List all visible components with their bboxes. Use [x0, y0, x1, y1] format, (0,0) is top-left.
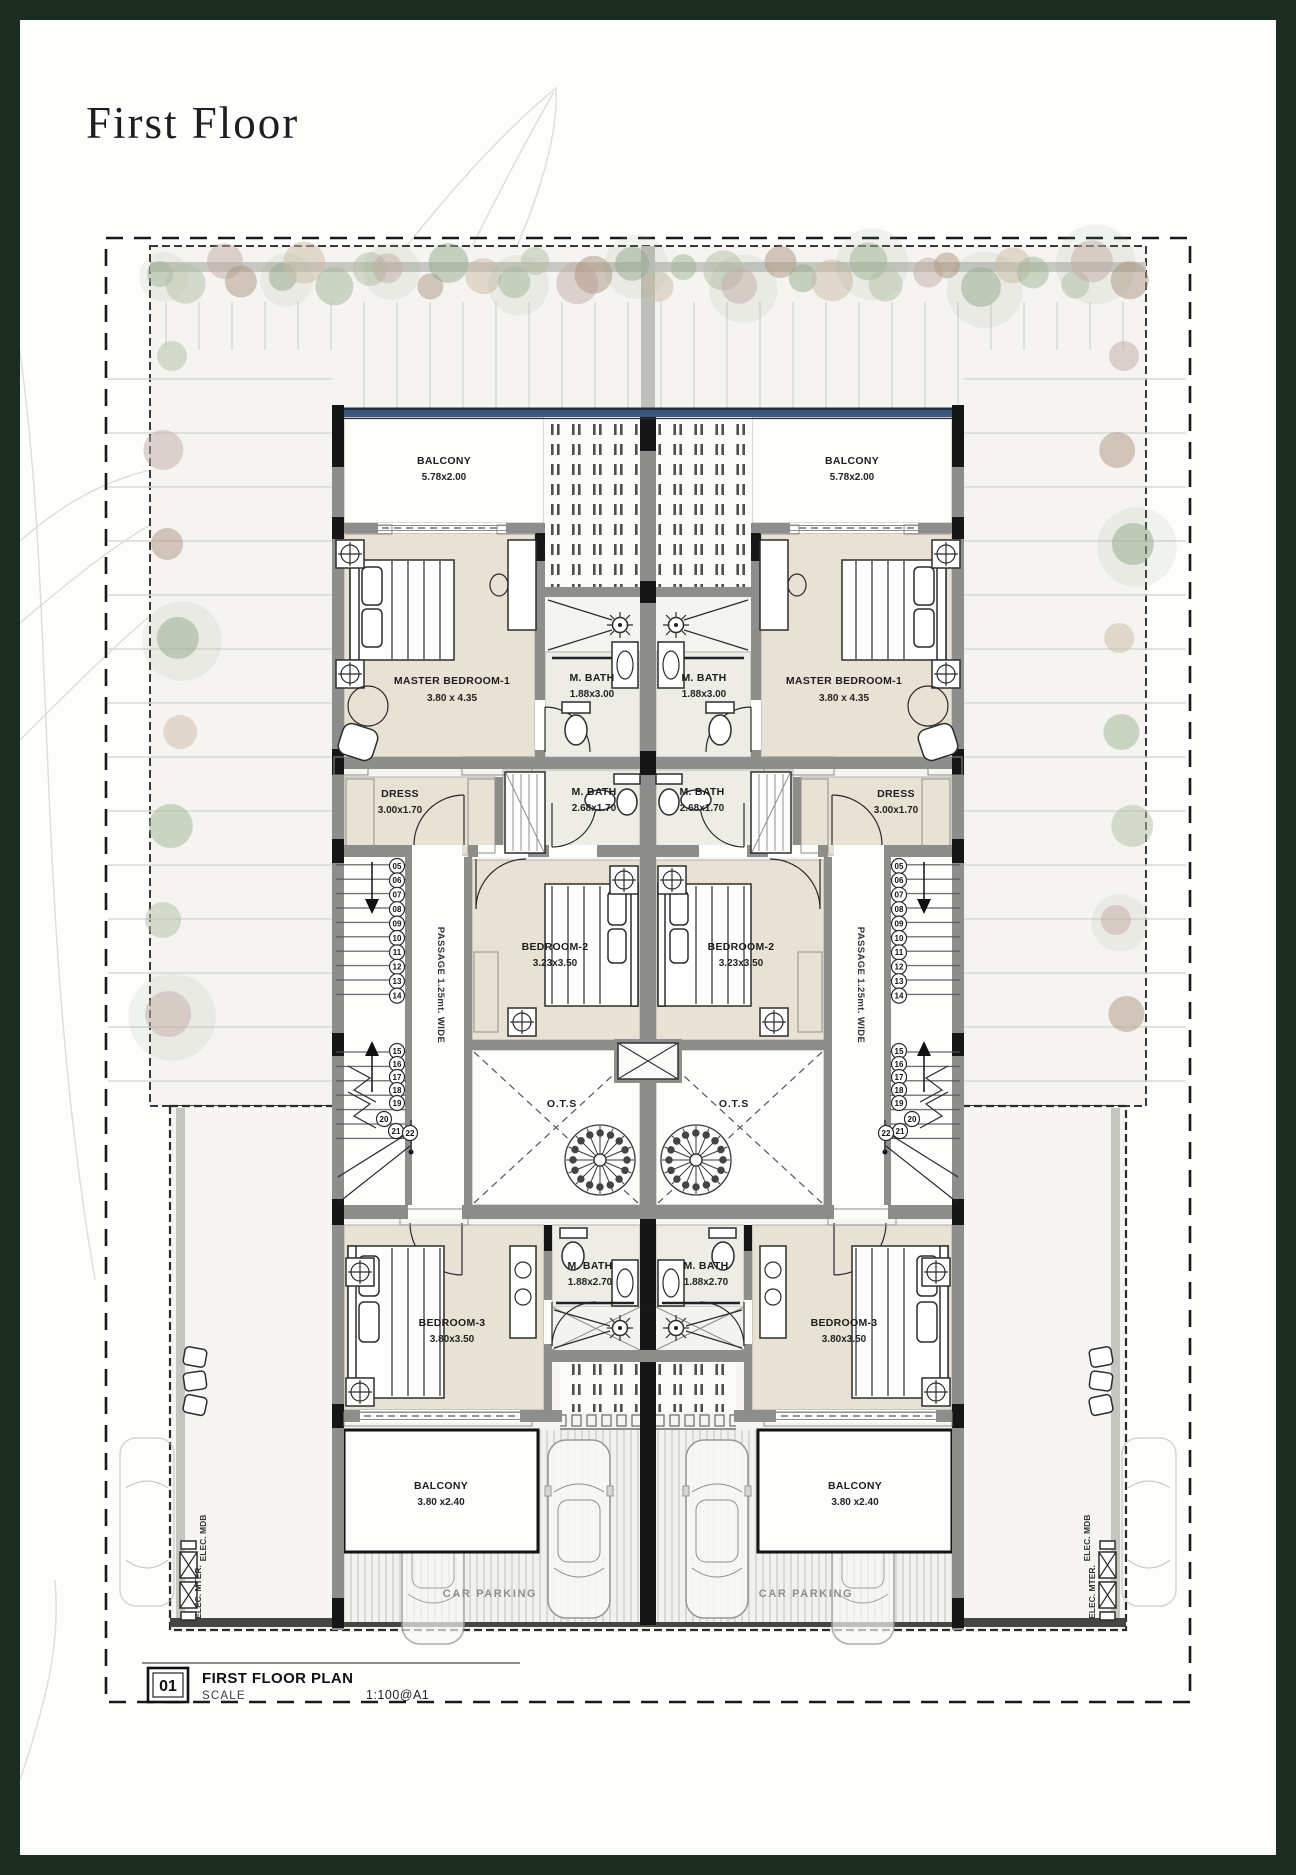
- stair-step-number: 17: [393, 1073, 402, 1082]
- room-dim: 5.78x2.00: [422, 472, 467, 483]
- stair-step-number: 10: [393, 934, 402, 943]
- room-dim: 1.88x3.00: [570, 689, 615, 700]
- tree: [1109, 341, 1139, 371]
- passage-label: PASSAGE 1.25mt. WIDE: [855, 927, 866, 1044]
- room-dim: 3.80 x 4.35: [427, 693, 477, 704]
- tree: [1104, 623, 1134, 653]
- glass-railing: [344, 410, 952, 417]
- stair-step-number: 22: [882, 1129, 891, 1138]
- stair-step-number: 06: [393, 876, 402, 885]
- stair-step-number: 09: [895, 919, 904, 928]
- room-label: DRESS: [381, 788, 419, 800]
- stair-step-number: 11: [895, 948, 904, 957]
- stair-step-number: 16: [895, 1060, 904, 1069]
- stair-step-number: 05: [895, 862, 904, 871]
- room-label: M. BATH: [571, 786, 616, 798]
- room-label: BALCONY: [417, 455, 471, 467]
- tree: [644, 272, 674, 302]
- stair-step-number: 19: [393, 1099, 402, 1108]
- tree: [149, 804, 193, 848]
- room-dim: 5.78x2.00: [830, 472, 875, 483]
- stair-step-number: 21: [896, 1127, 905, 1136]
- room-label: O.T.S: [547, 1098, 577, 1110]
- stair-step-number: 18: [895, 1086, 904, 1095]
- tree: [1108, 996, 1144, 1032]
- drawing-number: 01: [159, 1678, 177, 1695]
- stair-step-number: 22: [406, 1129, 415, 1138]
- tree: [1071, 240, 1113, 282]
- stair-step-number: 16: [393, 1060, 402, 1069]
- room-label: BEDROOM-2: [522, 941, 589, 953]
- stair-step-number: 13: [895, 977, 904, 986]
- tree: [1017, 257, 1049, 289]
- stair-step-number: 18: [393, 1086, 402, 1095]
- stair-step-number: 12: [393, 963, 402, 972]
- stair-step-number: 19: [895, 1099, 904, 1108]
- room-dim: 2.68x1.70: [572, 803, 617, 814]
- elec-meter-label: ELEC. MTER.: [193, 1565, 203, 1619]
- car-parking-label: CAR PARKING: [759, 1588, 853, 1600]
- stair-step-number: 20: [380, 1115, 389, 1124]
- stair-step-number: 08: [393, 905, 402, 914]
- tree: [1111, 805, 1153, 847]
- stair-step-number: 15: [895, 1047, 904, 1056]
- rail-edge: [344, 408, 952, 411]
- stair-step-number: 21: [392, 1127, 401, 1136]
- room-label: BALCONY: [414, 1480, 468, 1492]
- tree: [225, 266, 257, 298]
- tree: [428, 243, 468, 283]
- elec-meter-label: ELEC. MTER.: [1087, 1565, 1097, 1619]
- tree: [521, 247, 549, 275]
- tree: [373, 253, 403, 283]
- passage-label: PASSAGE 1.25mt. WIDE: [435, 927, 446, 1044]
- room-dim: 1.88x2.70: [684, 1277, 729, 1288]
- room-label: BALCONY: [825, 455, 879, 467]
- room-dim: 3.23x3.50: [719, 958, 764, 969]
- drawing-title: FIRST FLOOR PLAN: [202, 1670, 353, 1687]
- room-label: M. BATH: [569, 672, 614, 684]
- tree: [1103, 714, 1139, 750]
- stair-step-number: 14: [895, 991, 904, 1000]
- stair-step-number: 07: [895, 891, 904, 900]
- room-dim: 3.80 x 4.35: [819, 693, 869, 704]
- tree: [315, 267, 353, 305]
- room-dim: 3.80 x2.40: [417, 1497, 465, 1508]
- room-label: O.T.S: [719, 1098, 749, 1110]
- scale-value: 1:100@A1: [366, 1688, 429, 1702]
- room-label: BALCONY: [828, 1480, 882, 1492]
- tree: [145, 902, 181, 938]
- tree: [1112, 523, 1154, 565]
- room-label: M. BATH: [681, 672, 726, 684]
- floor-plan-sheet: First Floor BALCONY 5.78x2.00 BALCONY: [0, 0, 1296, 1875]
- stair-step-number: 15: [393, 1047, 402, 1056]
- tree: [1099, 432, 1135, 468]
- stair-step-number: 12: [895, 963, 904, 972]
- room-dim: 3.80x3.50: [430, 1334, 475, 1345]
- stair-step-number: 20: [908, 1115, 917, 1124]
- stair-step-number: 14: [393, 991, 402, 1000]
- stair-step-number: 17: [895, 1073, 904, 1082]
- room-dim: 2.68x1.70: [680, 803, 725, 814]
- room-label: M. BATH: [683, 1260, 728, 1272]
- tree: [157, 341, 187, 371]
- tree: [145, 991, 191, 1037]
- stair-step-number: 10: [895, 934, 904, 943]
- room-label: MASTER BEDROOM-1: [786, 675, 902, 687]
- stair-step-number: 11: [393, 948, 402, 957]
- page-title: First Floor: [86, 98, 299, 148]
- tree: [869, 268, 903, 302]
- room-label: DRESS: [877, 788, 915, 800]
- room-label: BEDROOM-3: [811, 1317, 878, 1329]
- room-dim: 3.80x3.50: [822, 1334, 867, 1345]
- room-dim: 1.88x3.00: [682, 689, 727, 700]
- room-label: M. BATH: [679, 786, 724, 798]
- tree: [151, 528, 183, 560]
- stair-step-number: 05: [393, 862, 402, 871]
- room-dim: 3.00x1.70: [378, 805, 423, 816]
- tree: [615, 247, 649, 281]
- elec-mdb-label: ELEC. MDB: [1082, 1515, 1092, 1562]
- tree: [163, 715, 197, 749]
- car-parking-label: CAR PARKING: [443, 1588, 537, 1600]
- room-label: BEDROOM-3: [419, 1317, 486, 1329]
- room-dim: 3.80 x2.40: [831, 1497, 879, 1508]
- room-dim: 1.88x2.70: [568, 1277, 613, 1288]
- tree: [1101, 905, 1131, 935]
- stair-step-number: 09: [393, 919, 402, 928]
- elec-mdb-label: ELEC. MDB: [198, 1515, 208, 1562]
- stair-step-number: 08: [895, 905, 904, 914]
- room-label: BEDROOM-2: [708, 941, 775, 953]
- tree: [166, 264, 206, 304]
- tree: [721, 268, 757, 304]
- tree: [1111, 261, 1149, 299]
- stair-step-number: 13: [393, 977, 402, 986]
- room-label: MASTER BEDROOM-1: [394, 675, 510, 687]
- tree: [157, 617, 199, 659]
- tree: [143, 430, 183, 470]
- room-dim: 3.23x3.50: [533, 958, 578, 969]
- stair-step-number: 06: [895, 876, 904, 885]
- room-label: M. BATH: [567, 1260, 612, 1272]
- room-dim: 3.00x1.70: [874, 805, 919, 816]
- tree: [961, 267, 1001, 307]
- tree: [670, 254, 696, 280]
- scale-label: SCALE: [202, 1690, 246, 1702]
- stair-step-number: 07: [393, 891, 402, 900]
